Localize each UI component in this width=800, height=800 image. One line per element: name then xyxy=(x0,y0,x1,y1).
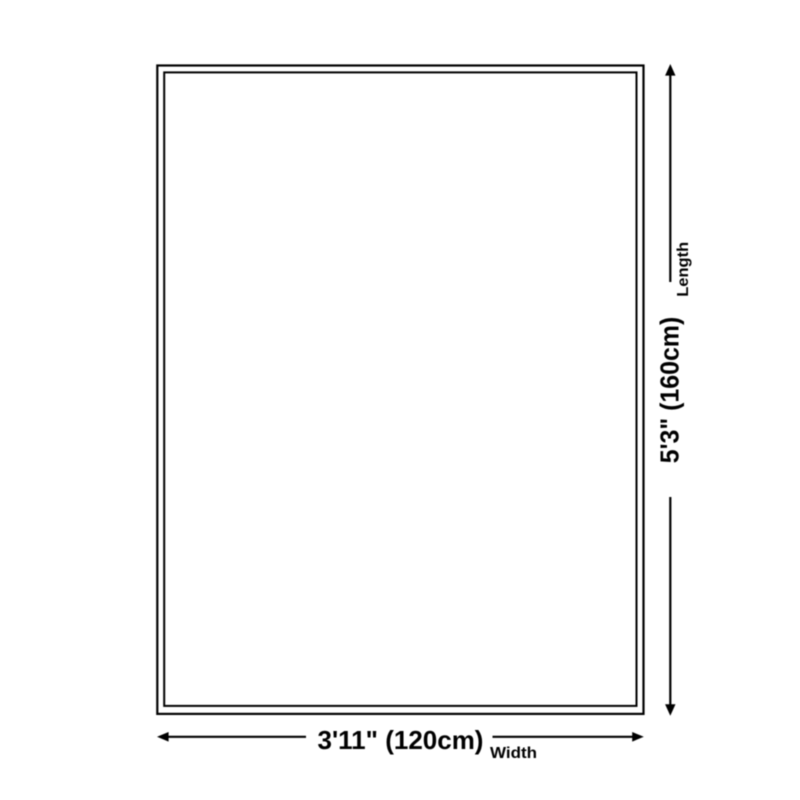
svg-text:5'3" (160cm): 5'3" (160cm) xyxy=(657,317,685,464)
svg-text:Width: Width xyxy=(490,745,537,762)
svg-text:Length: Length xyxy=(675,242,692,297)
svg-text:3'11" (120cm): 3'11" (120cm) xyxy=(318,725,484,755)
